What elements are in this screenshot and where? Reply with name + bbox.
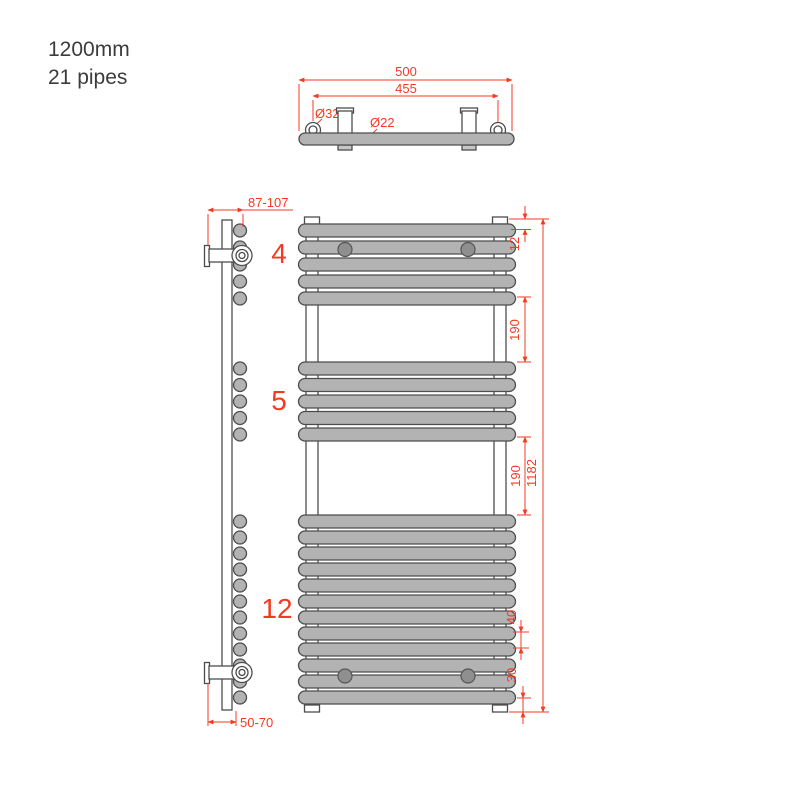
pipe-end-circle	[234, 627, 247, 640]
group3-count-label: 12	[261, 593, 292, 624]
pipe-end-circle	[234, 379, 247, 392]
pipe	[299, 643, 516, 656]
pipe	[299, 362, 516, 375]
pipe	[299, 241, 516, 254]
radiator-technical-drawing: 1200mm 21 pipes 500 455 Ø32 Ø22	[0, 0, 800, 800]
top-bracket-arm	[209, 249, 235, 262]
pipe	[299, 611, 516, 624]
front-right-collector-top-cap	[493, 217, 508, 224]
pipe	[299, 675, 516, 688]
bottom-bracket-arm	[209, 666, 235, 679]
pipe	[299, 428, 516, 441]
mount-dot-top-left	[338, 243, 352, 257]
mount-dot-bottom-right	[461, 669, 475, 683]
pipe	[299, 563, 516, 576]
side-view-collector	[222, 220, 232, 710]
left-post	[338, 111, 352, 135]
pipe	[299, 292, 516, 305]
pipe-end-circle	[234, 395, 247, 408]
pipe-end-circle	[234, 611, 247, 624]
pipe-end-circle	[234, 224, 247, 237]
front-view: 4 5 12 12 190 190 1182 40 30	[261, 206, 549, 724]
dim-190-upper-label: 190	[507, 319, 522, 341]
dim-12-label: 12	[507, 237, 522, 251]
pipe-end-circle	[234, 547, 247, 560]
pipe	[299, 395, 516, 408]
side-view-pipe-circles	[234, 224, 247, 704]
top-bracket-flange-mid	[236, 250, 248, 262]
dia22-label: Ø22	[370, 115, 395, 130]
dim-30-extension-lines	[517, 698, 531, 712]
front-left-collector-bottom-cap	[305, 705, 320, 712]
pipe	[299, 531, 516, 544]
bottom-bracket-flange-mid	[236, 667, 248, 679]
pipe-end-circle	[234, 531, 247, 544]
pipe	[299, 579, 516, 592]
dim-30-label: 30	[504, 668, 519, 682]
pipe	[299, 627, 516, 640]
dim-500-label: 500	[395, 64, 417, 79]
pipe-end-circle	[234, 563, 247, 576]
pipe-end-circle	[234, 292, 247, 305]
pipe	[299, 691, 516, 704]
pipe	[299, 379, 516, 392]
pipe-end-circle	[234, 428, 247, 441]
right-post-foot	[462, 145, 476, 150]
dim-40-label: 40	[504, 610, 519, 624]
pipe-end-circle	[234, 412, 247, 425]
group1-count-label: 4	[271, 238, 287, 269]
side-view: 87-107 50-70	[205, 195, 294, 730]
pipe-end-circle	[234, 515, 247, 528]
group2-count-label: 5	[271, 385, 287, 416]
pipe	[299, 515, 516, 528]
pipe	[299, 275, 516, 288]
pipe-end-circle	[234, 643, 247, 656]
pipe-end-circle	[234, 595, 247, 608]
dim-50-70-label: 50-70	[240, 715, 273, 730]
pipe-end-circle	[234, 691, 247, 704]
pipe	[299, 412, 516, 425]
top-view: 500 455 Ø32 Ø22	[299, 64, 514, 150]
top-view-pipe-bar	[299, 133, 514, 145]
mount-dot-bottom-left	[338, 669, 352, 683]
front-view-pipes	[299, 224, 516, 704]
pipe-end-circle	[234, 362, 247, 375]
dim-455-label: 455	[395, 81, 417, 96]
dim-87-107-label: 87-107	[248, 195, 288, 210]
drawing-svg: 500 455 Ø32 Ø22	[0, 0, 800, 800]
left-post-foot	[338, 145, 352, 150]
pipe	[299, 258, 516, 271]
right-post	[462, 111, 476, 135]
pipe	[299, 547, 516, 560]
pipe-end-circle	[234, 275, 247, 288]
front-left-collector-top-cap	[305, 217, 320, 224]
front-right-collector-bottom-cap	[493, 705, 508, 712]
dim-1182-label: 1182	[524, 459, 539, 487]
pipe	[299, 595, 516, 608]
mount-dot-top-right	[461, 243, 475, 257]
pipe	[299, 659, 516, 672]
pipe-end-circle	[234, 579, 247, 592]
dim-190-lower-label: 190	[508, 465, 523, 487]
pipe	[299, 224, 516, 237]
